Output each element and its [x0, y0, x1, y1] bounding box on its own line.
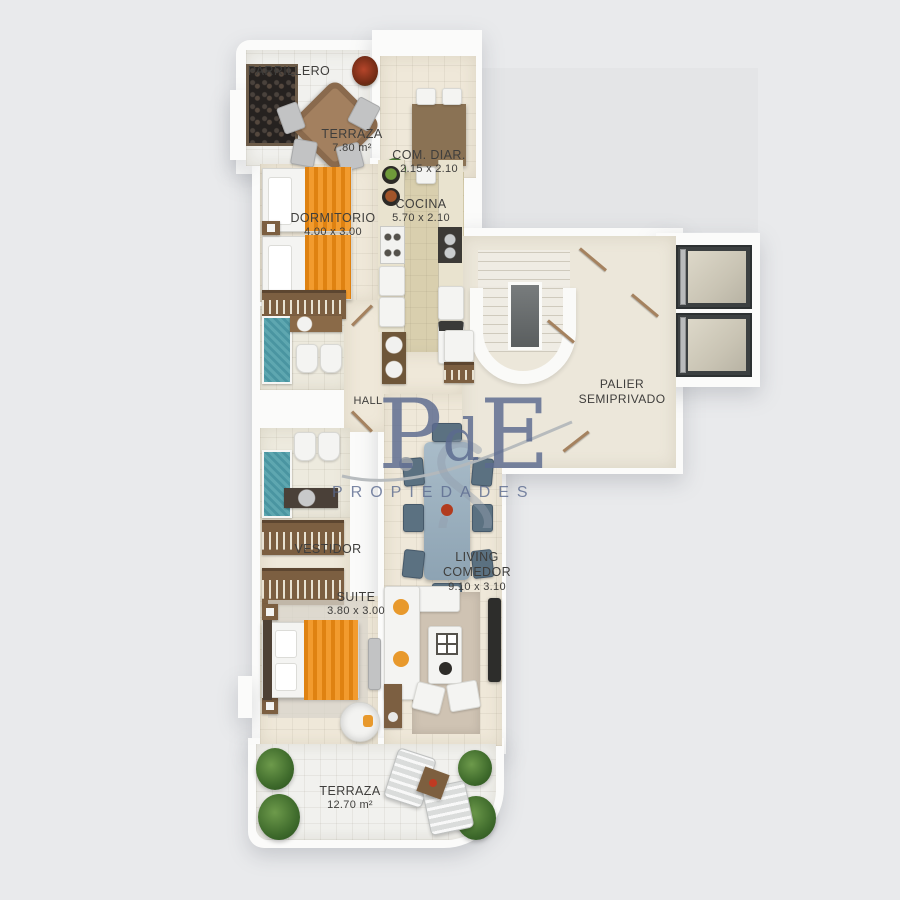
room-area: 12.70 m²: [319, 799, 380, 812]
dining-chair: [471, 457, 494, 487]
shower: [262, 316, 292, 384]
knob: [388, 712, 398, 722]
bidet: [320, 344, 342, 373]
dining-chair: [402, 549, 426, 579]
room-name: VESTIDOR: [294, 542, 361, 557]
room-name: TERRAZA: [321, 127, 382, 142]
room-label-dormitorio: DORMITORIO 4.00 x 3.00: [290, 211, 375, 240]
kitchen-cabinet: [379, 266, 405, 296]
bathroom-vanity: [290, 316, 342, 332]
room-name: PARRILLERO: [248, 64, 330, 79]
chair-cushion: [363, 715, 373, 727]
headboard: [263, 620, 272, 700]
kitchen-cabinet: [379, 297, 405, 327]
terrace-plant: [258, 794, 300, 840]
room-name-line1: LIVING: [443, 550, 511, 565]
room-label-terraza-bottom: TERRAZA 12.70 m²: [319, 784, 380, 813]
centerpiece: [441, 504, 453, 516]
neighbor-unit-silhouette: [482, 68, 758, 232]
room-area: 7.80 m²: [321, 142, 382, 155]
elevator-door: [680, 249, 686, 305]
room-label-cocina: COCINA 5.70 x 2.10: [392, 197, 450, 226]
nightstand-lamp: [266, 702, 274, 710]
pillow: [268, 177, 292, 225]
dishwasher: [438, 286, 464, 320]
room-dims: 9.10 x 3.10: [443, 581, 511, 594]
room-name: COCINA: [392, 197, 450, 212]
elevator-cab: [688, 251, 746, 303]
room-name: HALL: [353, 395, 382, 408]
nightstand: [262, 698, 278, 714]
dining-chair: [403, 504, 424, 532]
chair: [442, 88, 462, 105]
room-dims: 4.00 x 3.00: [290, 226, 375, 239]
side-cabinet: [384, 684, 402, 728]
terrace-plant: [256, 748, 294, 790]
stair-shaft: [508, 282, 542, 350]
room-name: COM. DIAR.: [392, 148, 465, 163]
room-dims: 5.70 x 2.10: [392, 212, 450, 225]
dining-chair: [472, 504, 493, 532]
sofa: [384, 586, 420, 700]
nightstand: [262, 221, 280, 235]
pouf: [446, 680, 481, 713]
pillow: [268, 245, 292, 293]
room-label-parrillero: PARRILLERO: [248, 64, 330, 79]
room-label-living: LIVING COMEDOR 9.10 x 3.10: [443, 550, 511, 594]
chair: [416, 88, 436, 105]
wardrobe: [262, 290, 346, 319]
room-label-suite: SUITE 3.80 x 3.00: [327, 590, 385, 619]
double-basin-vanity: [382, 332, 406, 384]
nightstand-lamp: [267, 224, 275, 232]
nightstand: [262, 604, 278, 620]
elevator: [676, 313, 752, 377]
toilet: [294, 432, 316, 461]
elevator: [676, 245, 752, 309]
nightstand-lamp: [266, 608, 274, 616]
wall-pilaster-left-bottom: [238, 676, 252, 718]
room-name-line2: SEMIPRIVADO: [579, 392, 666, 407]
bathroom-vanity: [284, 488, 338, 508]
room-label-com-diar: COM. DIAR. 2.15 x 2.10: [392, 148, 465, 177]
pillow: [275, 630, 297, 658]
washing-machine: [444, 330, 474, 362]
bed-blanket: [304, 620, 358, 700]
room-name-line1: PALIER: [579, 377, 666, 392]
red-plant: [352, 56, 378, 86]
dining-chair: [402, 457, 425, 487]
outdoor-chair: [290, 138, 318, 168]
room-dims: 3.80 x 3.00: [327, 605, 385, 618]
dresser: [368, 638, 381, 690]
elevator-door: [680, 317, 686, 373]
stove: [380, 226, 405, 264]
room-name: DORMITORIO: [290, 211, 375, 226]
tray: [436, 633, 458, 655]
drink: [428, 778, 438, 788]
round-chair: [340, 702, 380, 742]
room-name: TERRAZA: [319, 784, 380, 799]
room-name-line2: COMEDOR: [443, 565, 511, 580]
entry-closet: [444, 362, 474, 383]
room-label-palier: PALIER SEMIPRIVADO: [579, 377, 666, 406]
tv-unit: [488, 598, 501, 682]
coffee-table: [428, 626, 462, 684]
kitchen-sink: [438, 227, 462, 263]
toilet: [296, 344, 318, 373]
elevator-cab: [688, 319, 746, 371]
sofa-pillow: [393, 651, 409, 667]
room-name: SUITE: [327, 590, 385, 605]
bidet: [318, 432, 340, 461]
room-label-hall: HALL: [353, 395, 382, 408]
double-bed: [262, 622, 359, 698]
floorplan-canvas: PARRILLERO TERRAZA 7.80 m² COM. DIAR. 2.…: [0, 0, 900, 900]
room-dims: 2.15 x 2.10: [392, 163, 465, 176]
room-label-terraza-top: TERRAZA 7.80 m²: [321, 127, 382, 156]
bowl: [439, 662, 452, 675]
room-label-vestidor: VESTIDOR: [294, 542, 361, 557]
sofa-pillow: [393, 599, 409, 615]
dining-chair: [432, 423, 462, 442]
pillow: [275, 663, 297, 691]
